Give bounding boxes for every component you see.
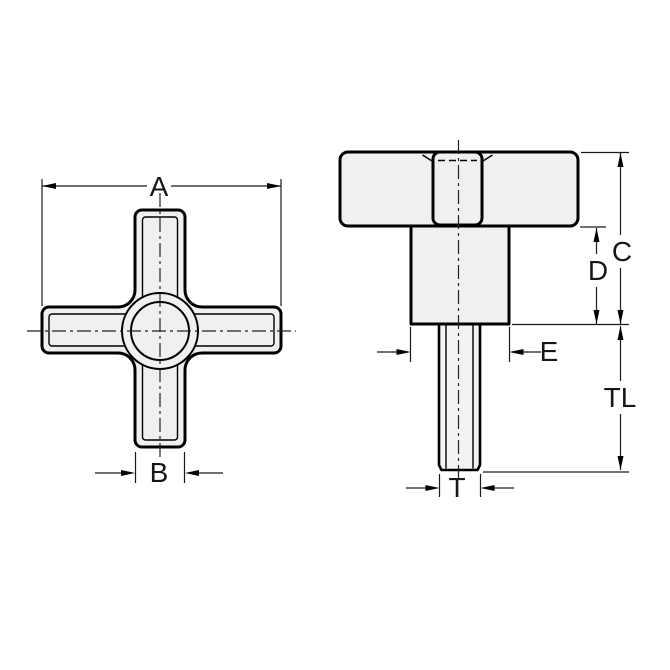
arrow-down-icon: [618, 456, 624, 470]
arrow-down-icon: [594, 310, 600, 324]
drawing-stage: A B: [0, 0, 670, 670]
technical-drawing-canvas: A B: [0, 0, 670, 670]
dimension-d: D: [588, 228, 608, 324]
arrow-right-icon: [121, 470, 135, 476]
dimension-tl: TL: [604, 326, 637, 470]
arrow-left-icon: [481, 485, 495, 491]
front-view-cross-knob: A B: [27, 171, 296, 488]
threaded-stud: [439, 324, 480, 470]
arrow-down-icon: [618, 310, 624, 324]
dim-label-a: A: [150, 171, 169, 202]
dim-label-t: T: [448, 472, 465, 503]
arrow-left-icon: [42, 183, 56, 189]
arrow-up-icon: [618, 153, 624, 167]
side-view-knob: C D TL E: [340, 140, 636, 503]
arrow-up-icon: [594, 228, 600, 242]
dimension-c: C: [612, 153, 632, 324]
arrow-up-icon: [618, 326, 624, 340]
arrow-right-icon: [397, 349, 411, 355]
dimension-t: T: [406, 472, 514, 503]
arrow-right-icon: [426, 485, 440, 491]
arrow-left-icon: [185, 470, 199, 476]
arrow-right-icon: [267, 183, 281, 189]
hub-cylinder: [411, 226, 509, 324]
dim-label-e: E: [540, 336, 559, 367]
dim-label-c: C: [612, 236, 632, 267]
arrow-left-icon: [510, 349, 524, 355]
dim-label-d: D: [588, 255, 608, 286]
dim-label-tl: TL: [604, 382, 637, 413]
dimension-b: B: [95, 452, 223, 488]
dim-label-b: B: [150, 457, 169, 488]
center-boss: [433, 152, 482, 225]
